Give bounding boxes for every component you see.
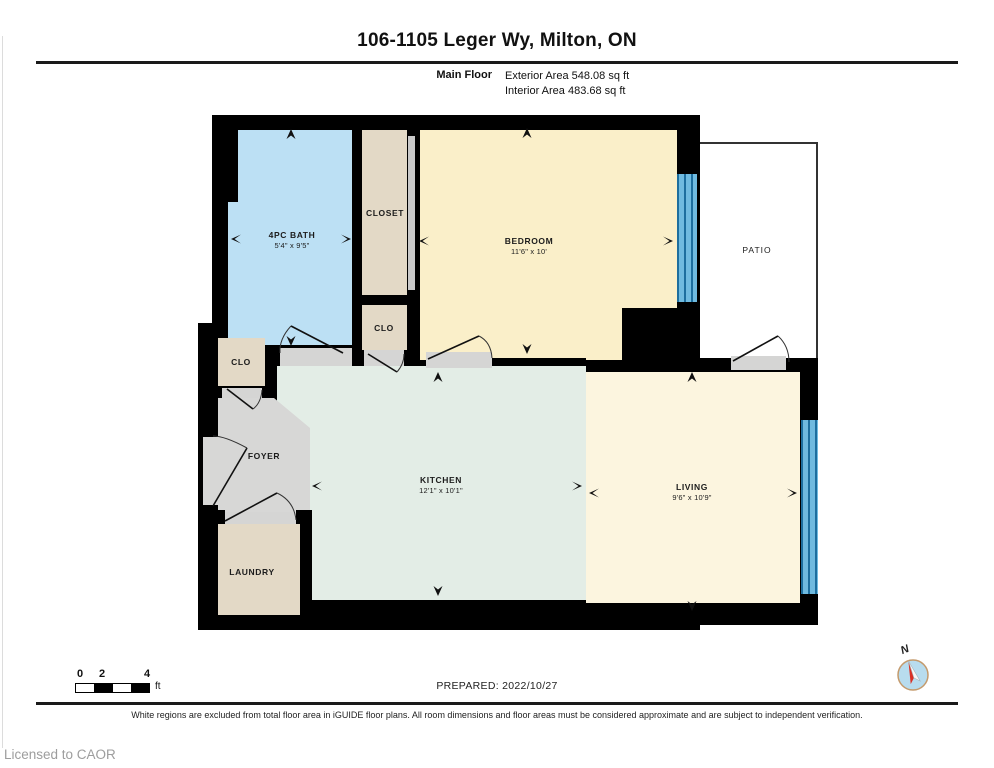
living-arrow-down [688, 601, 697, 611]
bedroom-arrow-left [419, 237, 429, 246]
clo-mid-label: CLO [374, 323, 394, 333]
bath-arrow-down [287, 336, 296, 346]
living-arrow-left [589, 489, 599, 498]
bath-label: 4PC BATH 5'4" x 9'5" [269, 230, 316, 250]
laundry-door-arc [277, 493, 296, 520]
living-label: LIVING 9'6" x 10'9" [672, 482, 711, 502]
kitchen-label: KITCHEN 12'1" x 10'1" [419, 475, 463, 495]
page-title: 106-1105 Leger Wy, Milton, ON [0, 30, 994, 52]
bedroom-door-arc [479, 336, 492, 358]
patio-door-leaf [733, 336, 778, 361]
footer-divider [36, 702, 958, 705]
compass-icon [890, 652, 938, 700]
bath-arrow-right [341, 235, 351, 244]
bedroom-arrow-up [523, 128, 532, 138]
exterior-area: Exterior Area 548.08 sq ft [505, 69, 629, 84]
bath-arrow-left [231, 235, 241, 244]
clo-mid-door-arc [397, 354, 404, 372]
kitchen-arrow-up [434, 372, 443, 382]
entry-door-leaf [213, 448, 247, 506]
kitchen-arrow-left [312, 482, 322, 491]
patio-label: PATIO [742, 245, 771, 255]
prepared-date: PREPARED: 2022/10/27 [0, 680, 994, 692]
clo-left-label: CLO [231, 357, 251, 367]
disclaimer-text: White regions are excluded from total fl… [0, 710, 994, 720]
living-arrow-right [787, 489, 797, 498]
kitchen-arrow-right [572, 482, 582, 491]
foyer-label: FOYER [248, 451, 280, 461]
bath-arrow-up [287, 129, 296, 139]
kitchen-arrow-down [434, 586, 443, 596]
scale-tick-2: 2 [99, 668, 105, 680]
bedroom-label: BEDROOM 11'6" x 10' [505, 236, 554, 256]
scale-tick-4: 4 [144, 668, 150, 680]
license-text: Licensed to CAOR [4, 747, 116, 762]
laundry-door-leaf [225, 493, 277, 521]
closet-label: CLOSET [366, 208, 404, 218]
floor-name: Main Floor [300, 69, 492, 81]
clo-left-door-leaf [227, 389, 253, 409]
bedroom-door-leaf [428, 336, 479, 359]
floor-areas: Exterior Area 548.08 sq ft Interior Area… [505, 69, 629, 99]
living-arrow-up [688, 372, 697, 382]
title-divider [36, 61, 958, 64]
document-edge-line [2, 36, 3, 748]
patio-door-arc [778, 336, 789, 362]
scale-tick-0: 0 [77, 668, 83, 680]
laundry-label: LAUNDRY [229, 567, 274, 577]
clo-left-door-arc [253, 390, 262, 409]
bedroom-arrow-right [663, 237, 673, 246]
interior-area: Interior Area 483.68 sq ft [505, 84, 629, 99]
doors-and-arrows-overlay [198, 113, 820, 632]
clo-mid-door-leaf [368, 354, 397, 372]
bath-door-leaf [291, 326, 343, 353]
entry-door-arc [213, 436, 247, 448]
measure-arrows [231, 128, 797, 611]
bedroom-arrow-down [523, 344, 532, 354]
floor-plan-page: 106-1105 Leger Wy, Milton, ON Main Floor… [0, 0, 994, 768]
